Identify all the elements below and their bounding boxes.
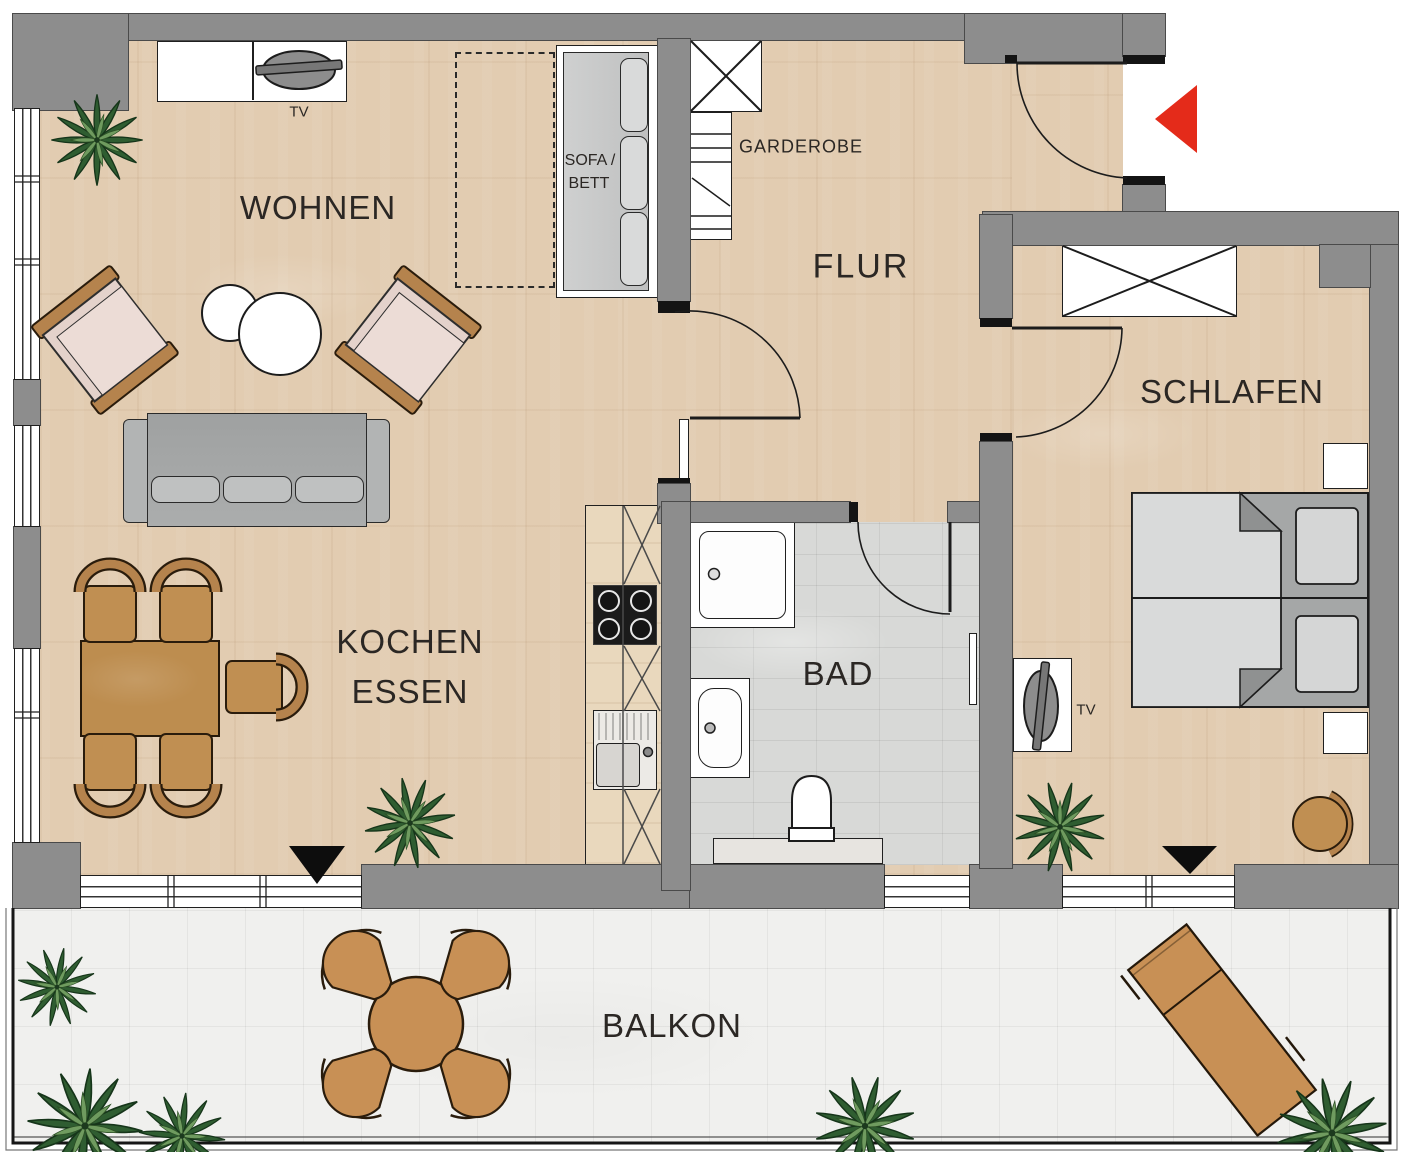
wall-left-pier1 [14, 380, 40, 425]
entrance-jamb-top [1123, 55, 1165, 64]
wall-entrance-upper [1123, 14, 1165, 56]
wall-bath-bedroom [980, 442, 1012, 868]
sofa-armrest-left [123, 419, 149, 523]
wall-top-left-corner [13, 14, 128, 110]
label-wardrobe: GARDEROBE [739, 137, 863, 158]
floor-plan-canvas: WOHNEN FLUR SCHLAFEN KOCHEN ESSEN BAD BA… [0, 0, 1402, 1152]
sofa-seat-cushion [151, 476, 220, 503]
entrance-arrow-icon [1155, 85, 1197, 153]
tv-sideboard-bedroom [1013, 658, 1072, 752]
sofa-bed-cushion [620, 58, 648, 132]
wall-bottom-kitchen [362, 865, 692, 908]
sofa-armrest-right [364, 419, 390, 523]
tv-lowboard-divider [252, 42, 254, 100]
sofa-bed-cushion [620, 136, 648, 210]
wall-bottom-left-corner [13, 843, 80, 908]
wall-bottom-mid [970, 865, 1062, 908]
door-jamb [849, 502, 858, 522]
bath-bench [713, 838, 883, 864]
glass-partition [679, 419, 689, 483]
window-bath [884, 875, 970, 908]
washbasin-bowl [698, 688, 742, 768]
wall-left-pier2 [14, 527, 40, 648]
wall-hall-bedroom-upper [980, 215, 1012, 318]
wardrobe-bedroom [1062, 245, 1237, 317]
sofa-body [147, 413, 367, 527]
entrance-jamb-bottom [1123, 176, 1165, 185]
wall-right [1370, 245, 1398, 908]
wall-bottom-bath [690, 865, 884, 908]
wardrobe-hall-box [690, 40, 762, 112]
wall-bath-hinge [948, 502, 980, 522]
kitchen-counter [585, 505, 662, 865]
label-sofa-bed-line1: SOFA / [565, 152, 616, 170]
sink-basin [596, 743, 640, 787]
label-sofa-bed-line2: BETT [569, 175, 610, 193]
window-balcony-door-bedroom [1062, 875, 1235, 908]
bedroom-floor [1012, 245, 1370, 875]
wall-kitchen-bath [662, 502, 690, 890]
door-jamb [658, 301, 690, 313]
wall-living-hall [658, 39, 690, 301]
window-balcony-door-kitchen [80, 875, 362, 908]
room-label-balcony: BALKON [602, 1007, 742, 1045]
label-tv-living: TV [289, 104, 308, 121]
wall-entrance-lower [1123, 185, 1165, 214]
sofa-seat-cushion [295, 476, 364, 503]
sofa-seat-cushion [223, 476, 292, 503]
wardrobe-hall-shelf [690, 112, 732, 240]
nightstand-bottom [1323, 712, 1368, 754]
room-label-bath: BAD [803, 655, 874, 693]
wall-bedroom-top [983, 212, 1398, 245]
shower-tray [699, 531, 786, 619]
nightstand-top [1323, 443, 1368, 489]
door-jamb [1005, 55, 1017, 63]
window-dining-left [14, 648, 40, 843]
towel-rail [969, 633, 977, 705]
wall-bedroom-pier [1320, 245, 1370, 287]
door-jamb [980, 433, 1012, 442]
stove [593, 585, 657, 645]
wall-vestibule [965, 14, 1123, 63]
label-tv-bedroom: TV [1076, 702, 1095, 719]
room-label-dining: ESSEN [352, 673, 469, 711]
sofa-bed-cushion [620, 212, 648, 286]
door-jamb [980, 318, 1012, 327]
room-label-bedroom: SCHLAFEN [1140, 373, 1324, 411]
sofa-bed-foldout-outline [455, 52, 555, 288]
window-living-left-2 [14, 425, 40, 527]
room-label-hall: FLUR [813, 248, 910, 287]
room-label-living: WOHNEN [240, 189, 396, 227]
wall-bath-top [662, 502, 850, 522]
wall-bottom-bedroom [1235, 865, 1398, 908]
dining-table [80, 640, 220, 737]
room-label-kitchen: KOCHEN [336, 623, 483, 661]
tv-lowboard [157, 41, 347, 102]
window-living-left-1 [14, 108, 40, 380]
